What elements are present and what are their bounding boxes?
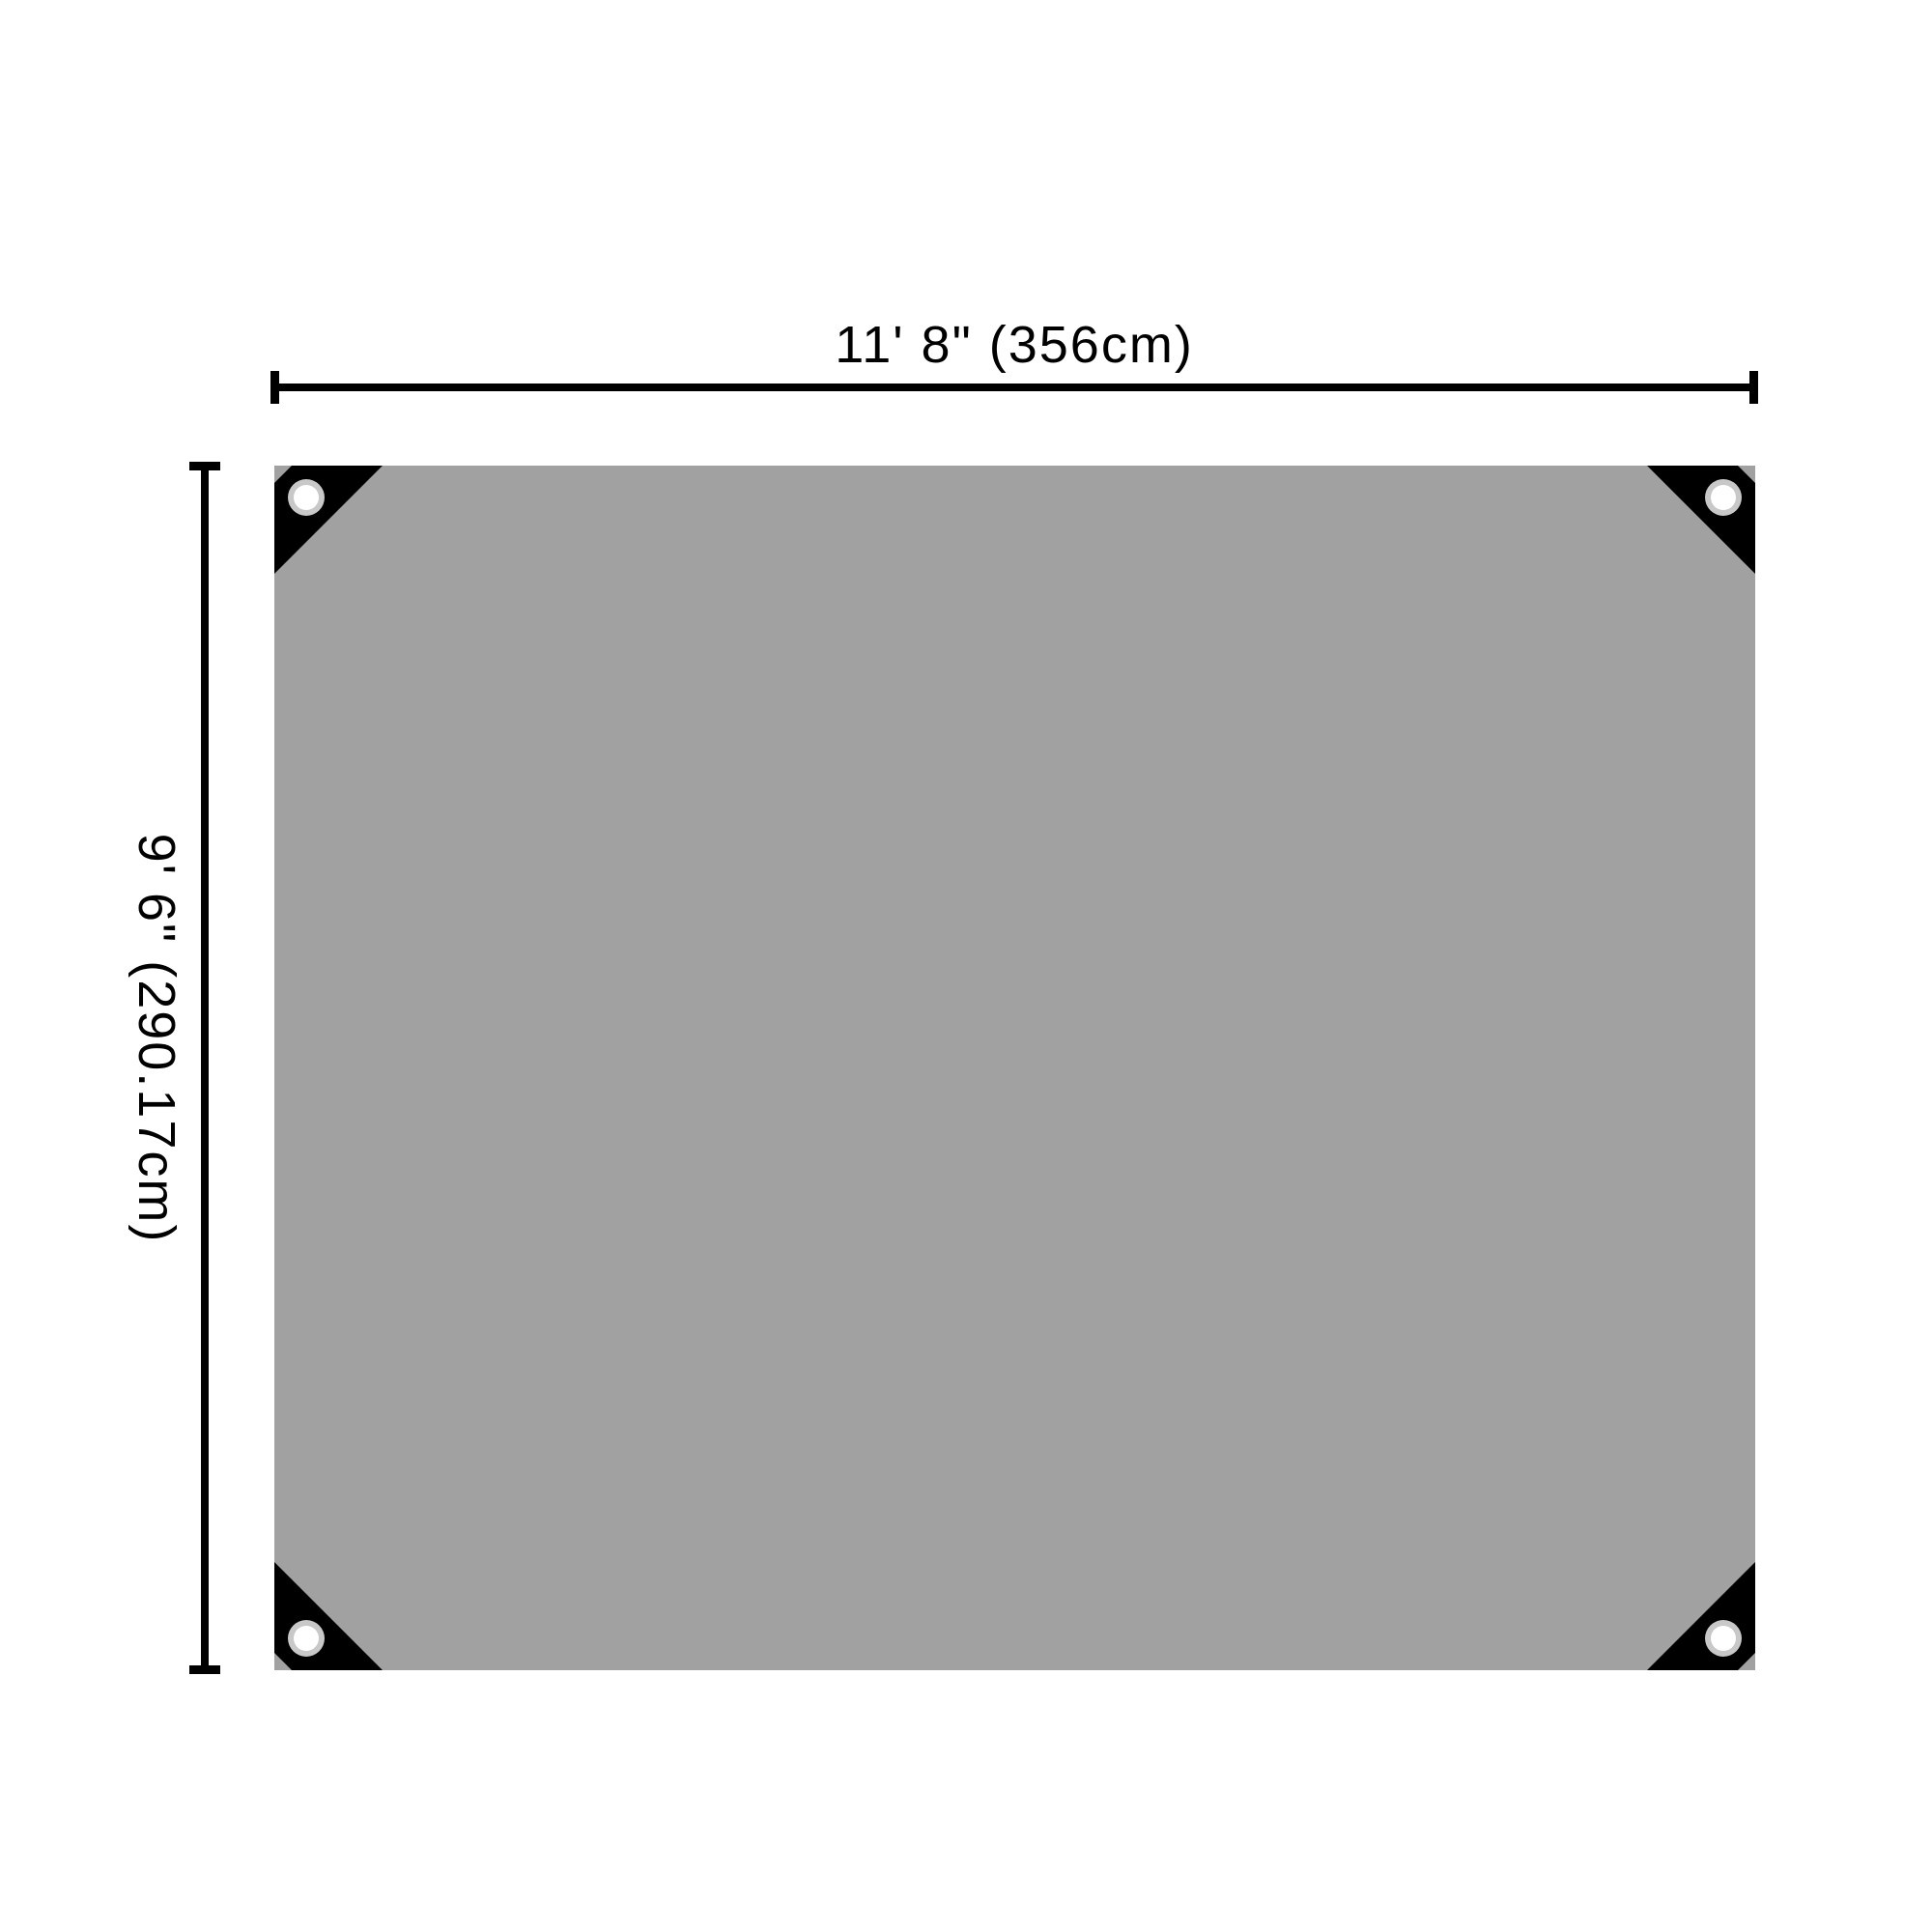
width-line-right-tick [1749,371,1758,404]
height-dimension-label: 9' 6" (290.17cm) [127,834,186,1244]
grommet-hole [294,485,319,510]
width-line-left-tick [270,371,279,404]
grommet-hole [294,1626,319,1651]
grommet-bottom-left [288,1620,325,1657]
tarp-dimension-diagram: 11' 8" (356cm) 9' 6" (290.17cm) [0,0,1932,1932]
height-line-bottom-tick [189,1665,220,1674]
height-dimension-line [189,462,220,1674]
grommet-hole [1711,485,1736,510]
width-dimension-line [270,371,1758,404]
grommet-top-right [1705,479,1742,516]
tarp-graphic [274,466,1755,1670]
grommet-top-left [288,479,325,516]
height-line-bar [201,470,209,1665]
width-dimension-label: 11' 8" (356cm) [270,315,1758,375]
height-line-top-tick [189,462,220,470]
tarp-fabric [274,466,1755,1670]
grommet-hole [1711,1626,1736,1651]
width-line-bar [279,384,1749,391]
grommet-bottom-right [1705,1620,1742,1657]
